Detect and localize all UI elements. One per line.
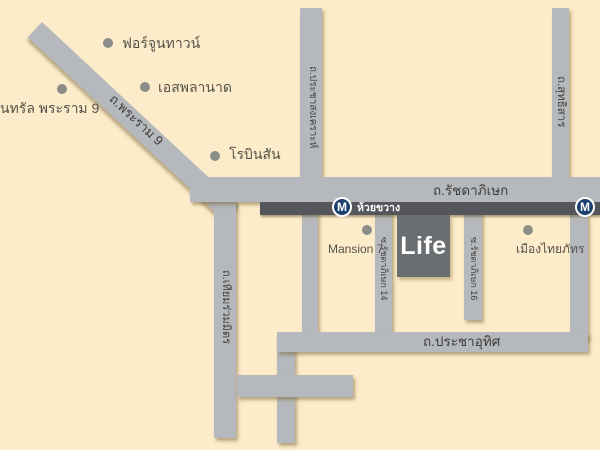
poi-label-esplanade: เอสพลานาด <box>158 80 232 94</box>
road-label-ratchadaphisek: ถ.รัชดาภิเษก <box>433 184 508 198</box>
road-label-sutthisan: ถ.สุทธิสาร <box>555 76 567 127</box>
life-project-marker: Life <box>397 215 450 277</box>
life-logo: Life <box>400 232 446 261</box>
poi-dot-muang-thai-phatra <box>523 225 533 235</box>
poi-label-mansion7: Mansion 7 <box>328 243 383 255</box>
mrt-station-name: ห้วยขวาง <box>357 199 400 216</box>
road-cross-stub <box>237 375 353 397</box>
mrt-logo-icon: M <box>332 197 352 217</box>
poi-label-fortune-town: ฟอร์จูนทาวน์ <box>122 36 200 50</box>
mrt-line-band <box>260 202 600 215</box>
poi-dot-robinson <box>210 151 220 161</box>
poi-dot-central-rama9 <box>57 84 67 94</box>
road-label-pracha-uthit: ถ.ประชาอุทิศ <box>423 335 500 349</box>
poi-dot-mansion7 <box>362 225 372 235</box>
road-pracharat-bamphen <box>302 212 318 336</box>
map-canvas: ถ.พระราม 9 ถ.รัชดาภิเษก ถ.ประชาอุทิศ ถ.ป… <box>0 0 600 450</box>
mrt-logo-icon: M <box>575 197 595 217</box>
poi-label-muang-thai-phatra: เมืองไทยภัทร <box>516 243 584 255</box>
mrt-station-sutthisan: M ส <box>575 197 600 217</box>
road-label-thiam-ruam-mit: ถ.เทียมร่วมมิตร <box>220 270 231 344</box>
poi-dot-esplanade <box>140 82 150 92</box>
poi-label-robinson: โรบินสัน <box>229 147 281 161</box>
road-label-pracha-songkhro: ถ.ประชาสงเคราะห์ <box>307 66 317 148</box>
poi-dot-fortune-town <box>103 38 113 48</box>
road-label-soi-ratchada-16: ซ.รัชดาภิเษก 16 <box>469 237 478 300</box>
mrt-station-huai-khwang: M ห้วยขวาง <box>332 197 400 217</box>
road-sutthisan-winitchai <box>570 212 588 340</box>
poi-label-central-rama9: นทรัล พระราม 9 <box>0 101 99 115</box>
